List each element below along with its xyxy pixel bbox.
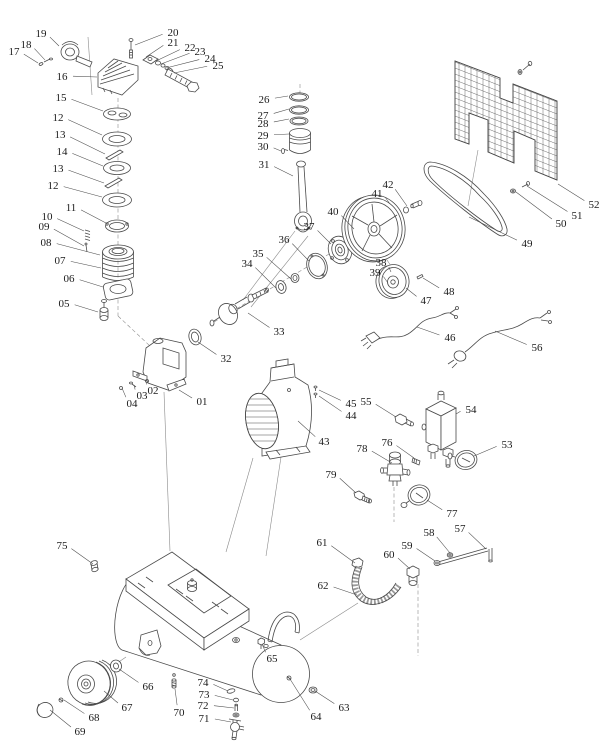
check-valve-small [100, 300, 108, 321]
leader-line-71 [215, 719, 231, 722]
part-label-02: 02 [148, 385, 159, 397]
part-label-18: 18 [21, 39, 33, 51]
leader-line-63 [315, 691, 334, 704]
leader-line-56 [495, 331, 527, 345]
part-label-56: 56 [532, 342, 544, 354]
part-label-48: 48 [444, 286, 456, 298]
leader-line-57 [469, 532, 486, 549]
crank-bearing [274, 279, 287, 294]
drain-valve-parts [227, 688, 239, 717]
leader-line-54 [456, 411, 461, 414]
electric-motor [241, 359, 311, 459]
valve-spring [85, 230, 90, 241]
part-label-71: 71 [199, 713, 210, 725]
part-label-61: 61 [317, 537, 328, 549]
wheel [62, 656, 116, 711]
part-label-39: 39 [370, 267, 382, 279]
part-label-37: 37 [304, 221, 316, 233]
leader-line-12 [68, 120, 102, 135]
pipe-nipple [412, 458, 420, 465]
leader-line-31 [274, 167, 293, 176]
part-label-43: 43 [319, 436, 331, 448]
leader-line-28 [274, 119, 289, 122]
part-label-30: 30 [258, 141, 270, 153]
power-cable-2 [448, 311, 552, 369]
leader-line-11 [81, 210, 106, 223]
guard-grid-line [455, 182, 557, 222]
leader-line-55 [376, 404, 396, 417]
leader-line-74 [213, 684, 228, 691]
leader-line-16 [73, 76, 97, 77]
part-label-05: 05 [59, 298, 71, 310]
leader-line-78 [372, 451, 392, 463]
leader-line-73 [215, 695, 233, 700]
part-label-74: 74 [198, 677, 210, 689]
leader-line-21 [146, 45, 163, 57]
wrist-pin [282, 149, 289, 154]
part-label-59: 59 [402, 540, 414, 552]
part-label-03: 03 [137, 390, 149, 402]
leader-line-13 [70, 137, 105, 154]
leader-line-32 [198, 342, 216, 355]
leader-line-69 [50, 710, 71, 727]
part-label-64: 64 [311, 711, 323, 723]
part-label-33: 33 [274, 326, 286, 338]
leader-line-46 [417, 327, 439, 335]
part-label-12: 12 [53, 112, 64, 124]
part-label-08: 08 [41, 237, 53, 249]
leader-line-66 [119, 669, 139, 682]
pressure-gauge [401, 482, 432, 507]
part-label-66: 66 [143, 681, 155, 693]
leader-line-13 [68, 170, 104, 183]
guard-grid-line [455, 170, 557, 210]
part-label-19: 19 [36, 28, 48, 40]
leader-line-25 [174, 66, 207, 73]
leader-line-33 [248, 313, 269, 327]
crank-nut [291, 274, 299, 283]
part-label-34: 34 [242, 258, 254, 270]
leader-line-10 [57, 219, 84, 231]
leader-line-26 [275, 96, 288, 98]
valve-plate-stack [103, 108, 132, 232]
part-label-41: 41 [372, 188, 383, 200]
motor-screws [314, 386, 317, 398]
part-label-13: 13 [53, 163, 65, 175]
crankcase-screws [120, 380, 149, 390]
wheel-washer [109, 659, 123, 673]
leader-line-14 [72, 153, 103, 166]
leader-line-30 [274, 148, 281, 151]
part-label-52: 52 [589, 199, 600, 211]
exploded-parts-diagram: 1718191615121314131211100908070605202122… [0, 0, 615, 755]
leader-line-60 [398, 558, 410, 569]
outlet-tube-bolt [165, 67, 199, 92]
leader-line-49 [469, 217, 517, 240]
cover-gasket [303, 251, 330, 282]
leader-line-06 [80, 280, 103, 287]
threaded-fitting [354, 491, 372, 503]
elbow-fitting [407, 566, 419, 586]
head-bolt [129, 39, 133, 59]
piston-rings [290, 93, 309, 125]
part-label-12: 12 [48, 180, 59, 192]
leader-line-17 [24, 54, 38, 63]
leader-line-37 [318, 230, 331, 244]
leader-line-18 [34, 49, 45, 60]
cylinder-head [98, 59, 138, 95]
part-label-55: 55 [361, 396, 373, 408]
part-label-49: 49 [522, 238, 534, 250]
part-label-53: 53 [502, 439, 514, 451]
leader-line-09 [54, 229, 84, 246]
leader-line-51 [527, 186, 567, 211]
guard-grid-line [455, 176, 557, 216]
part-label-45: 45 [346, 398, 358, 410]
leader-line-12 [64, 187, 102, 197]
leader-line-22 [156, 50, 180, 61]
leader-line-72 [214, 706, 234, 708]
part-label-42: 42 [383, 179, 394, 191]
part-label-26: 26 [259, 94, 271, 106]
regulator-valve [381, 452, 411, 486]
leader-line-35 [267, 257, 291, 279]
part-label-11: 11 [66, 202, 77, 214]
leader-line-61 [331, 546, 355, 563]
cylinder-gasket [103, 278, 134, 300]
leader-line-58 [437, 537, 450, 553]
part-label-60: 60 [384, 549, 396, 561]
part-label-31: 31 [259, 159, 270, 171]
crankshaft [210, 288, 269, 328]
pipe-nut [434, 561, 440, 566]
platform-bolt [172, 674, 176, 688]
leader-line-77 [427, 500, 442, 510]
part-label-40: 40 [328, 206, 340, 218]
part-label-58: 58 [424, 527, 436, 539]
pipe-washer [447, 553, 453, 557]
drain-cock [229, 719, 244, 740]
leader-line-79 [340, 478, 356, 493]
leader-line-34 [255, 268, 276, 288]
belt-guard [455, 54, 557, 222]
piston [290, 129, 311, 154]
leader-line-47 [406, 288, 417, 296]
leader-line-27 [274, 109, 289, 113]
part-label-07: 07 [55, 255, 67, 267]
leader-line-70 [175, 689, 177, 705]
leader-line-53 [474, 446, 497, 456]
part-label-35: 35 [253, 248, 265, 260]
part-label-21: 21 [168, 37, 179, 49]
leader-line-24 [166, 60, 199, 68]
leader-line-15 [71, 99, 103, 111]
part-label-68: 68 [89, 712, 101, 724]
leader-line-08 [57, 244, 100, 255]
part-label-32: 32 [221, 353, 232, 365]
part-label-65: 65 [267, 653, 279, 665]
part-label-36: 36 [279, 234, 291, 246]
part-label-69: 69 [75, 726, 87, 738]
flexible-hose [352, 566, 401, 604]
part-label-28: 28 [258, 118, 270, 130]
part-label-75: 75 [57, 540, 69, 552]
part-label-47: 47 [421, 295, 433, 307]
part-label-15: 15 [56, 92, 68, 104]
part-label-44: 44 [346, 410, 358, 422]
part-label-70: 70 [174, 707, 186, 719]
part-label-76: 76 [382, 437, 394, 449]
leader-line-29 [274, 134, 289, 135]
part-label-72: 72 [198, 700, 209, 712]
part-label-77: 77 [447, 508, 459, 520]
part-label-78: 78 [357, 443, 369, 455]
v-belt [424, 162, 507, 236]
part-label-67: 67 [122, 702, 134, 714]
rubber-plug [90, 560, 99, 573]
shaft-key [417, 275, 423, 280]
part-label-51: 51 [572, 210, 583, 222]
leader-line-50 [516, 192, 552, 219]
check-valve [395, 414, 414, 426]
part-label-14: 14 [57, 146, 69, 158]
flywheel-bolt [404, 201, 423, 214]
valve-pin [85, 243, 87, 252]
axle-screw [59, 698, 63, 702]
part-label-09: 09 [39, 221, 51, 233]
part-label-54: 54 [466, 404, 478, 416]
leader-line-19 [50, 37, 59, 46]
part-label-57: 57 [455, 523, 467, 535]
diagram-canvas: 1718191615121314131211100908070605202122… [0, 0, 615, 755]
leader-line-59 [417, 548, 435, 561]
part-label-62: 62 [318, 580, 329, 592]
part-label-50: 50 [556, 218, 568, 230]
part-label-46: 46 [445, 332, 457, 344]
leader-line-23 [161, 53, 190, 64]
part-label-04: 04 [127, 398, 139, 410]
crankcase [133, 338, 186, 391]
leader-line-04 [122, 388, 126, 397]
leader-line-44 [319, 396, 342, 411]
part-label-63: 63 [339, 702, 351, 714]
part-label-13: 13 [55, 129, 67, 141]
part-label-79: 79 [326, 469, 338, 481]
outlet-pipe [437, 548, 492, 565]
part-label-17: 17 [9, 46, 21, 58]
leader-line-01 [179, 390, 192, 398]
leader-line-20 [135, 34, 163, 45]
rod-bearing-assembly [39, 42, 92, 68]
part-label-25: 25 [213, 60, 225, 72]
leader-line-42 [395, 189, 407, 206]
leader-line-52 [558, 184, 584, 201]
leader-line-75 [71, 549, 93, 564]
leader-line-05 [75, 305, 98, 312]
leader-line-45 [319, 390, 341, 400]
part-label-16: 16 [57, 71, 69, 83]
part-label-06: 06 [64, 273, 76, 285]
part-label-01: 01 [197, 396, 208, 408]
leader-line-07 [71, 261, 101, 268]
leader-line-48 [423, 278, 439, 288]
hub-cap [35, 700, 55, 720]
